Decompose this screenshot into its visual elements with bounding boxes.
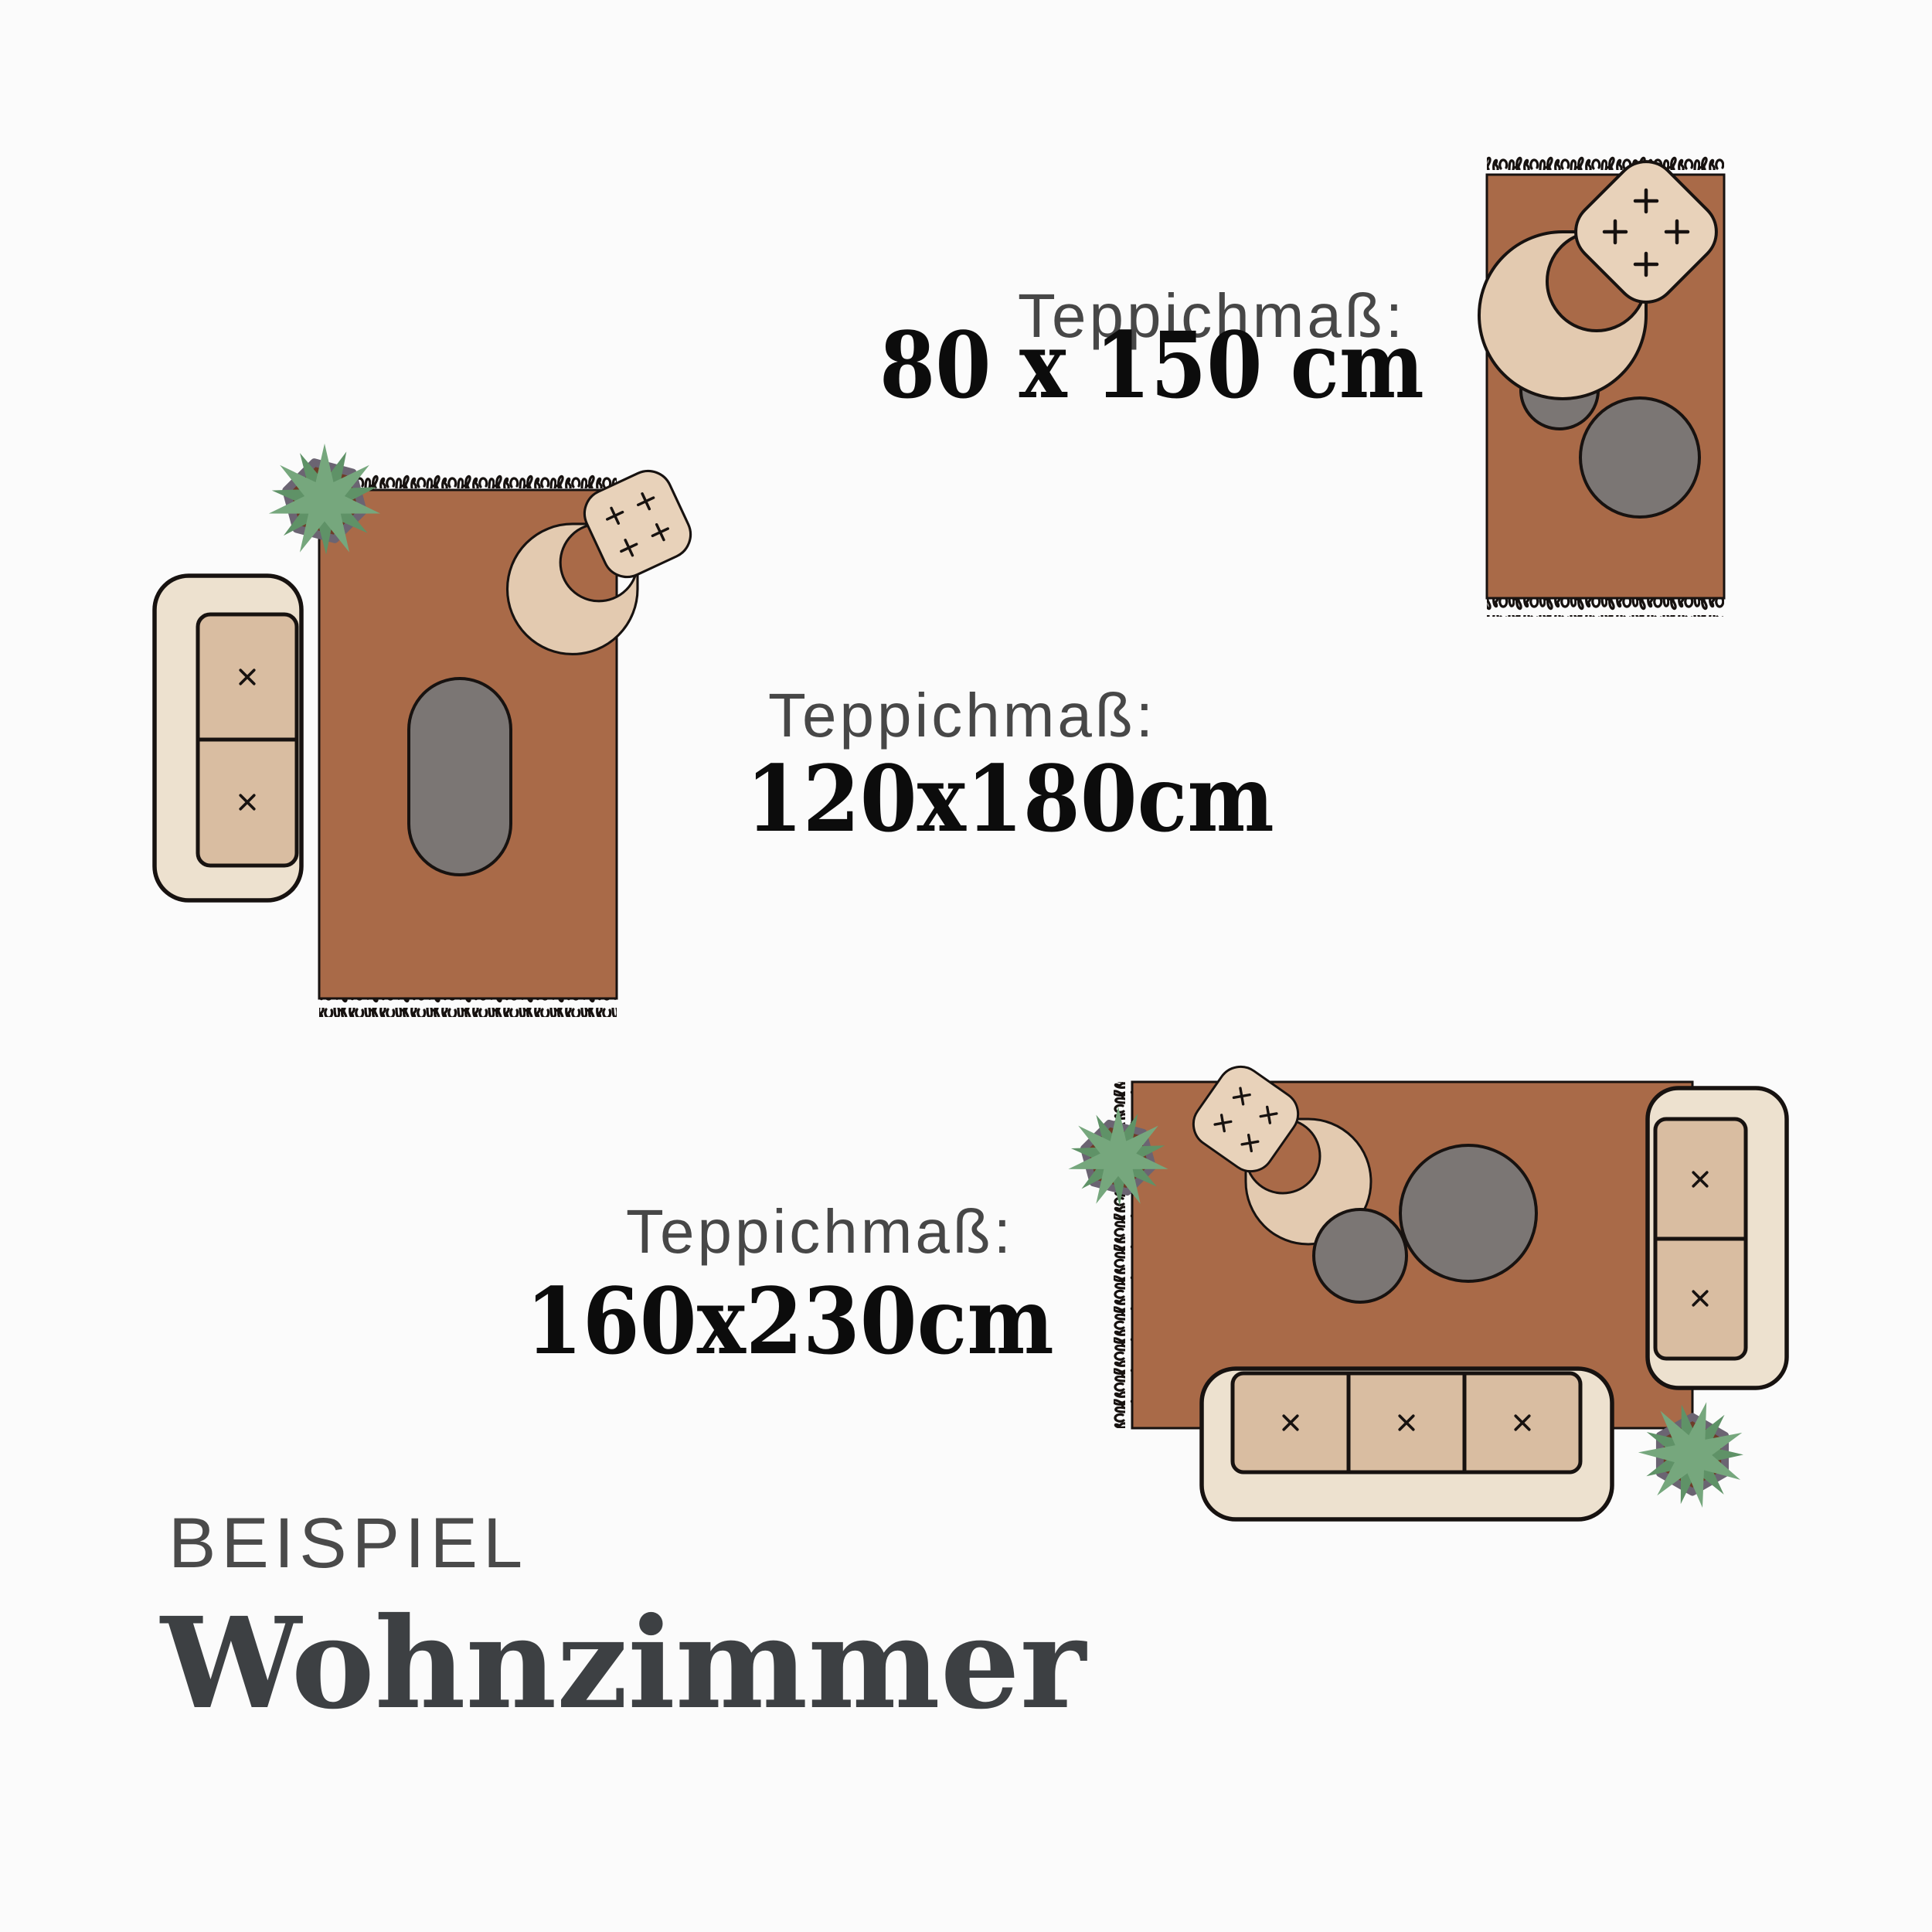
round-table-large: [1580, 398, 1699, 517]
sofa-two-seat: [155, 576, 301, 900]
rug-160x230-scene: [1051, 1005, 1932, 1592]
round-table-large: [1400, 1145, 1536, 1281]
oval-coffee-table: [409, 679, 511, 875]
sofa-two-seat: [1648, 1088, 1787, 1388]
round-table-small: [1314, 1209, 1406, 1302]
rug-fringe-top: [1487, 156, 1724, 175]
size-value-160x230: 160x230cm: [496, 1271, 1037, 1372]
size-value-text: 120x180cm: [746, 749, 1274, 849]
rug-120x180-scene: [93, 433, 680, 1059]
size-value-text: 160x230cm: [526, 1271, 1054, 1372]
size-value-80x150: 80 x 150 cm: [842, 315, 1461, 416]
rug-fringe-bottom: [319, 998, 617, 1017]
size-label-title-120x180: Teppichmaß:: [692, 680, 1233, 751]
size-value-text: 80 x 150 cm: [879, 315, 1424, 416]
rug-80x150-scene: [1453, 77, 1839, 634]
example-eyebrow: BEISPIEL: [168, 1508, 528, 1579]
page-title: Wohnzimmer: [161, 1595, 1086, 1733]
rug-fringe-top: [319, 471, 617, 490]
size-value-120x180: 120x180cm: [716, 749, 1257, 849]
rug-fringe-bottom: [1487, 598, 1724, 617]
size-label-title-160x230: Teppichmaß:: [549, 1196, 1090, 1267]
sofa-three-seat: [1202, 1369, 1612, 1519]
